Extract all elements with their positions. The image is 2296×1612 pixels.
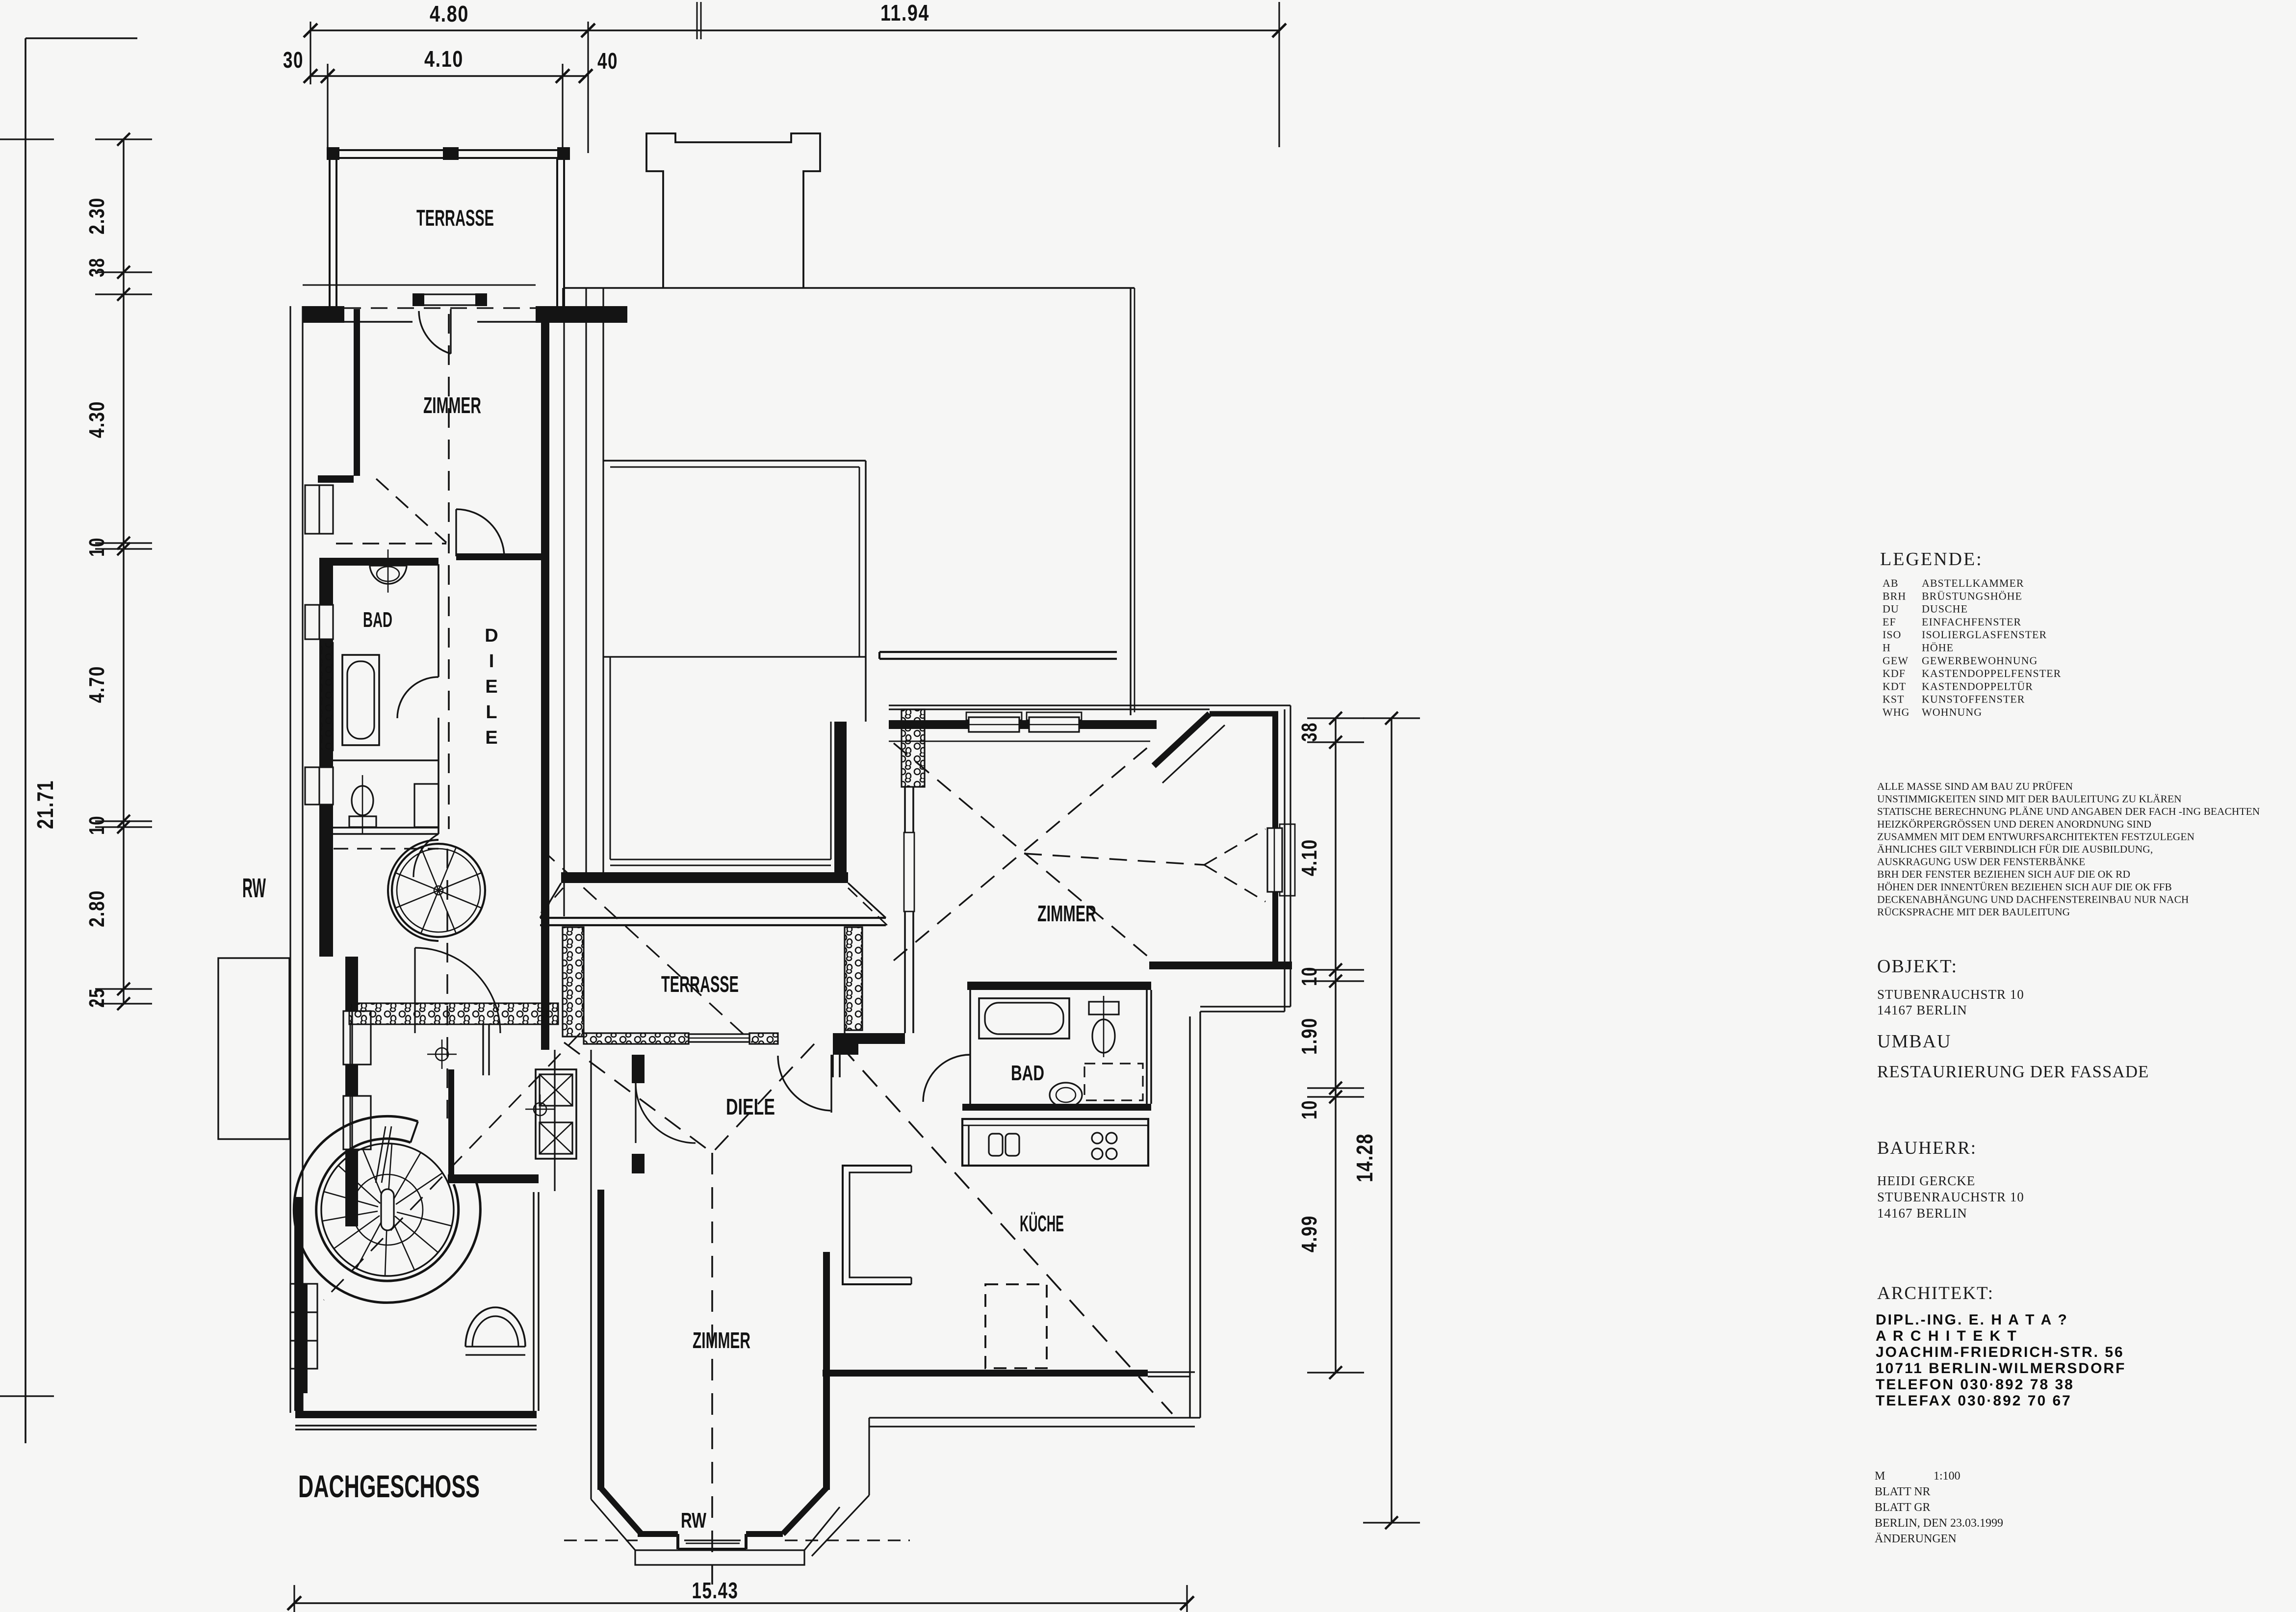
svg-text:BRH DER FENSTER BEZIEHEN SICH: BRH DER FENSTER BEZIEHEN SICH AUF DIE OK… [1877,868,2130,880]
svg-text:M: M [1875,1470,1885,1482]
svg-text:ALLE MASSE SIND AM BAU ZU PRÜF: ALLE MASSE SIND AM BAU ZU PRÜFEN [1877,780,2073,792]
svg-text:KDF: KDF [1883,667,1906,679]
svg-text:38: 38 [85,258,109,277]
svg-text:ZUSAMMEN MIT DEM ENTWURFSARCHI: ZUSAMMEN MIT DEM ENTWURFSARCHITEKTEN FES… [1877,831,2194,842]
svg-text:BRÜSTUNGSHÖHE: BRÜSTUNGSHÖHE [1922,590,2022,602]
svg-text:40: 40 [597,48,618,74]
svg-text:OBJEKT:: OBJEKT: [1877,956,1958,977]
svg-text:2.80: 2.80 [85,890,109,927]
svg-text:DU: DU [1883,603,1899,615]
svg-text:14167 BERLIN: 14167 BERLIN [1877,1206,1967,1221]
svg-text:RW: RW [242,872,266,903]
svg-text:25: 25 [85,988,109,1008]
svg-text:10: 10 [1297,966,1321,986]
svg-text:30: 30 [283,47,304,73]
svg-text:TERRASSE: TERRASSE [416,205,494,231]
svg-text:HÖHEN DER INNENTÜREN BEZIEHEN: HÖHEN DER INNENTÜREN BEZIEHEN SICH AUF D… [1877,881,2172,893]
svg-text:BAD: BAD [1011,1061,1044,1085]
svg-text:21.71: 21.71 [32,780,58,829]
svg-text:38: 38 [1297,722,1321,742]
svg-text:4.80: 4.80 [430,1,469,26]
svg-text:RW: RW [681,1508,706,1533]
svg-text:1:100: 1:100 [1934,1470,1961,1482]
svg-text:4.99: 4.99 [1297,1215,1321,1252]
svg-text:HEIZKÖRPERGRÖSSEN UND DEREN AN: HEIZKÖRPERGRÖSSEN UND DEREN ANORDNUNG SI… [1877,818,2151,830]
svg-text:DUSCHE: DUSCHE [1922,603,1968,615]
svg-text:ZIMMER: ZIMMER [1037,901,1096,926]
svg-text:I: I [489,651,494,672]
svg-text:GEW: GEW [1883,654,1909,667]
svg-text:4.30: 4.30 [85,401,109,438]
svg-text:ÄHNLICHES GILT VERBINDLICH FÜR: ÄHNLICHES GILT VERBINDLICH FÜR DIE AUSBI… [1877,843,2153,855]
svg-text:BRH: BRH [1883,590,1906,602]
svg-text:KDT: KDT [1883,680,1906,692]
svg-text:KST: KST [1883,693,1905,705]
svg-text:UMBAU: UMBAU [1877,1031,1951,1052]
svg-text:HEIDI GERCKE: HEIDI GERCKE [1877,1173,1975,1188]
svg-text:EF: EF [1883,616,1896,628]
svg-text:KASTENDOPPELTÜR: KASTENDOPPELTÜR [1922,680,2033,692]
svg-text:DECKENABHÄNGUNG UND DACHFENSTE: DECKENABHÄNGUNG UND DACHFENSTEREINBAU NU… [1877,893,2189,905]
svg-text:BAUHERR:: BAUHERR: [1877,1138,1977,1158]
svg-text:WHG: WHG [1883,706,1910,718]
svg-text:ZIMMER: ZIMMER [693,1327,750,1353]
svg-text:D: D [485,625,498,646]
svg-text:ARCHITEKT:: ARCHITEKT: [1877,1283,1994,1303]
svg-text:HÖHE: HÖHE [1922,642,1954,654]
svg-text:KÜCHE: KÜCHE [1020,1211,1064,1236]
svg-text:ÄNDERUNGEN: ÄNDERUNGEN [1875,1533,1957,1545]
svg-text:GEWERBEWOHNUNG: GEWERBEWOHNUNG [1922,654,2038,667]
svg-text:H: H [1883,642,1891,654]
svg-text:DIPL.-ING. E. H A T A ?: DIPL.-ING. E. H A T A ? [1876,1312,2068,1328]
svg-text:4.10: 4.10 [424,46,464,72]
svg-text:TELEFON 030·892 78 38: TELEFON 030·892 78 38 [1876,1377,2074,1393]
svg-text:TELEFAX 030·892 70 67: TELEFAX 030·892 70 67 [1876,1393,2072,1409]
svg-text:E: E [485,728,497,748]
svg-text:STUBENRAUCHSTR 10: STUBENRAUCHSTR 10 [1877,1190,2024,1204]
svg-text:TERRASSE: TERRASSE [661,971,739,997]
svg-text:14.28: 14.28 [1352,1133,1377,1182]
svg-text:10: 10 [85,815,109,835]
svg-text:EINFACHFENSTER: EINFACHFENSTER [1922,616,2021,628]
svg-text:JOACHIM-FRIEDRICH-STR. 56: JOACHIM-FRIEDRICH-STR. 56 [1876,1344,2124,1360]
svg-text:10711 BERLIN-WILMERSDORF: 10711 BERLIN-WILMERSDORF [1876,1360,2126,1377]
svg-text:UNSTIMMIGKEITEN SIND MIT DER B: UNSTIMMIGKEITEN SIND MIT DER BAULEITUNG … [1877,793,2182,805]
svg-text:BERLIN, DEN 23.03.1999: BERLIN, DEN 23.03.1999 [1875,1517,2003,1530]
svg-text:STATISCHE BERECHNUNG PLÄNE UND: STATISCHE BERECHNUNG PLÄNE UND ANGABEN D… [1877,806,2260,817]
svg-text:DACHGESCHOSS: DACHGESCHOSS [298,1469,480,1504]
svg-text:ABSTELLKAMMER: ABSTELLKAMMER [1922,577,2024,589]
svg-text:2.30: 2.30 [85,197,109,234]
svg-text:BLATT GR: BLATT GR [1875,1501,1931,1514]
svg-text:L: L [486,702,497,723]
svg-text:ISOLIERGLASFENSTER: ISOLIERGLASFENSTER [1922,628,2047,641]
svg-text:1.90: 1.90 [1297,1017,1321,1055]
svg-text:11.94: 11.94 [880,0,929,26]
svg-text:AB: AB [1883,577,1899,589]
svg-text:ISO: ISO [1883,628,1901,641]
svg-text:A R C H I T E K T: A R C H I T E K T [1876,1328,2018,1344]
svg-text:KUNSTOFFENSTER: KUNSTOFFENSTER [1922,693,2025,705]
svg-text:10: 10 [85,537,109,557]
svg-text:AUSKRAGUNG USW DER FENSTERBÄN: AUSKRAGUNG USW DER FENSTERBÄNKE [1877,856,2085,868]
svg-text:STUBENRAUCHSTR 10: STUBENRAUCHSTR 10 [1877,987,2024,1002]
svg-text:RÜCKSPRACHE MIT DER BAULEITUNG: RÜCKSPRACHE MIT DER BAULEITUNG [1877,906,2070,918]
svg-text:E: E [485,676,497,697]
svg-text:BAD: BAD [363,608,392,632]
svg-text:14167 BERLIN: 14167 BERLIN [1877,1003,1967,1017]
svg-text:KASTENDOPPELFENSTER: KASTENDOPPELFENSTER [1922,667,2061,679]
svg-text:ZIMMER: ZIMMER [423,392,481,418]
svg-text:4.70: 4.70 [85,666,109,703]
svg-text:BLATT NR: BLATT NR [1875,1485,1931,1498]
svg-text:10: 10 [1297,1100,1321,1119]
svg-text:DIELE: DIELE [726,1094,775,1119]
svg-text:LEGENDE:: LEGENDE: [1880,549,1983,570]
svg-text:RESTAURIERUNG DER FASSADE: RESTAURIERUNG DER FASSADE [1877,1062,2149,1081]
svg-text:4.10: 4.10 [1297,839,1321,876]
svg-text:15.43: 15.43 [692,1578,739,1603]
svg-text:WOHNUNG: WOHNUNG [1922,706,1982,718]
